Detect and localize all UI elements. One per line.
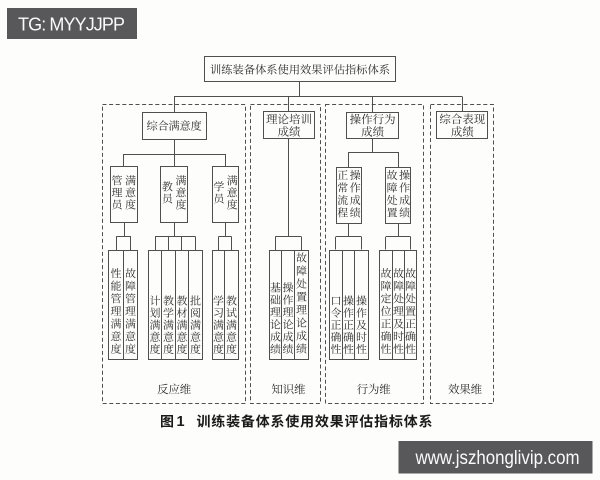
- svg-text:1: 1: [177, 414, 185, 430]
- svg-text:www.jszhonglivip.com: www.jszhonglivip.com: [415, 447, 580, 469]
- svg-text:TG: MYYJJPP: TG: MYYJJPP: [18, 15, 125, 35]
